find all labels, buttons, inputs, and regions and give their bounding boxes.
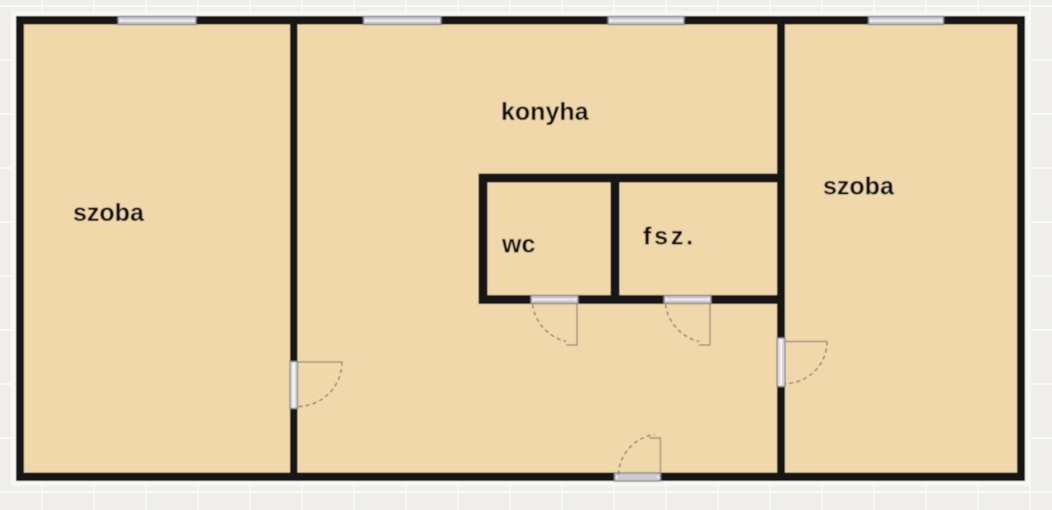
- svg-text:konyha: konyha: [501, 98, 590, 126]
- svg-text:wc: wc: [501, 231, 535, 259]
- svg-text:fsz.: fsz.: [643, 223, 696, 251]
- svg-text:szoba: szoba: [823, 173, 895, 201]
- svg-text:szoba: szoba: [73, 199, 145, 227]
